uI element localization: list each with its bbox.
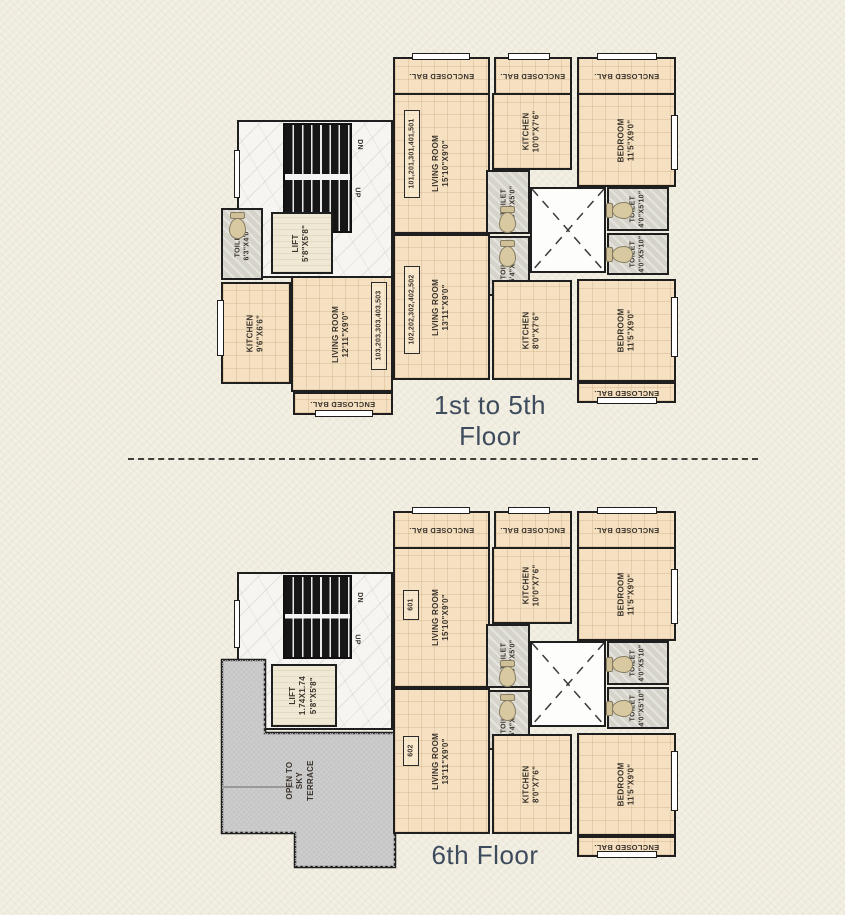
wc-fixture bbox=[499, 666, 516, 687]
window-marker bbox=[597, 507, 657, 514]
window-marker bbox=[412, 507, 470, 514]
terrace-label-wrap: OPEN TO SKY TERRACE bbox=[280, 738, 320, 823]
bedroom-601: BEDROOM 11'5"X9'0" bbox=[577, 547, 676, 641]
terrace-label: OPEN TO SKY TERRACE bbox=[284, 760, 315, 801]
lift-label: LIFT 1.74X1.74 5'8"X5'8" bbox=[288, 676, 319, 715]
floor-plan-sheet: LIVING ROOM 12'11"X9'0" KITCHEN 9'6"X6'6… bbox=[0, 0, 845, 915]
shaft-cross-icon bbox=[532, 643, 604, 725]
enclosed-balcony: ENCLOSED BAL. bbox=[393, 511, 490, 549]
wc-fixture bbox=[612, 700, 633, 717]
window-marker bbox=[671, 751, 678, 811]
kitchen-601: KITCHEN 10'0"X7'6" bbox=[492, 547, 572, 624]
wc-fixture bbox=[612, 656, 633, 673]
window-marker bbox=[671, 569, 678, 624]
window-marker bbox=[508, 507, 550, 514]
unit-box-601: 601 bbox=[403, 590, 419, 620]
duct-shaft bbox=[530, 641, 606, 727]
enclosed-balcony: ENCLOSED BAL. bbox=[577, 511, 676, 549]
window-marker bbox=[234, 600, 240, 648]
staircase bbox=[283, 575, 352, 659]
stair-up-label: UP bbox=[351, 627, 363, 653]
enclosed-balcony: ENCLOSED BAL. bbox=[494, 511, 572, 549]
bedroom-602: BEDROOM 11'5"X9'0" bbox=[577, 733, 676, 836]
unit-box-602: 602 bbox=[403, 736, 419, 766]
plan-6th-floor: DN UP OPEN TO SKY TERRACE LIFT 1.74X1.74… bbox=[0, 0, 845, 915]
plan2-caption: 6th Floor bbox=[395, 840, 575, 871]
kitchen-602: KITCHEN 8'0"X7'6" bbox=[492, 734, 572, 834]
wc-fixture bbox=[499, 700, 516, 721]
stair-dn-label: DN bbox=[353, 585, 365, 611]
lift: LIFT 1.74X1.74 5'8"X5'8" bbox=[271, 664, 337, 727]
window-marker bbox=[597, 851, 657, 858]
